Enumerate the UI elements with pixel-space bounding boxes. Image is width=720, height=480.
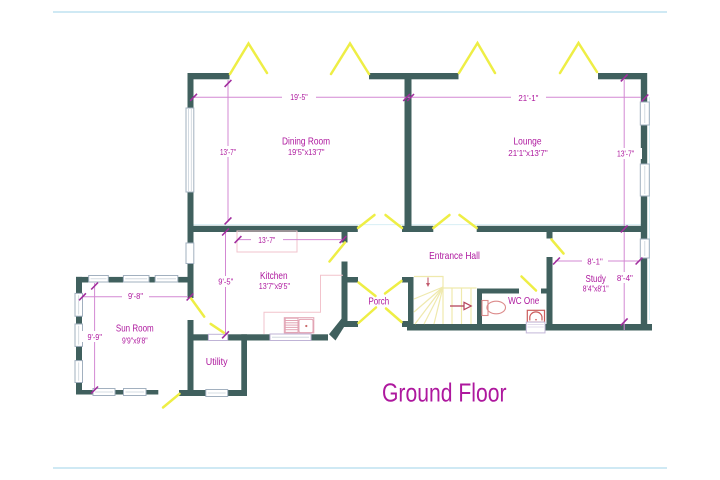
svg-text:8'-1": 8'-1" (587, 256, 603, 266)
svg-text:9'-9": 9'-9" (87, 332, 102, 342)
svg-text:Utility: Utility (206, 356, 229, 368)
svg-text:19'5"x13'7": 19'5"x13'7" (288, 147, 325, 157)
svg-text:8'-4": 8'-4" (617, 273, 633, 283)
svg-text:19'-5": 19'-5" (290, 92, 308, 102)
svg-text:9'-5": 9'-5" (218, 276, 233, 286)
svg-text:Porch: Porch (368, 296, 389, 308)
svg-text:Dining Room: Dining Room (282, 136, 330, 148)
svg-text:13'-7": 13'-7" (617, 149, 634, 159)
svg-text:8'4"x8'1": 8'4"x8'1" (583, 283, 609, 293)
svg-text:Ground Floor: Ground Floor (382, 378, 507, 408)
svg-text:13'-7": 13'-7" (258, 235, 275, 245)
svg-text:Sun Room: Sun Room (116, 322, 154, 334)
svg-text:21'1"x13'7": 21'1"x13'7" (508, 148, 547, 158)
svg-text:9'-8": 9'-8" (128, 291, 143, 301)
svg-text:21'-1": 21'-1" (518, 93, 538, 103)
svg-text:Entrance Hall: Entrance Hall (429, 250, 480, 262)
svg-text:9'9"x9'8": 9'9"x9'8" (122, 336, 148, 346)
svg-text:13'-7": 13'-7" (220, 147, 236, 157)
svg-text:Lounge: Lounge (514, 135, 542, 147)
svg-text:WC One: WC One (508, 295, 539, 307)
svg-text:13'7"x9'5": 13'7"x9'5" (259, 281, 290, 291)
